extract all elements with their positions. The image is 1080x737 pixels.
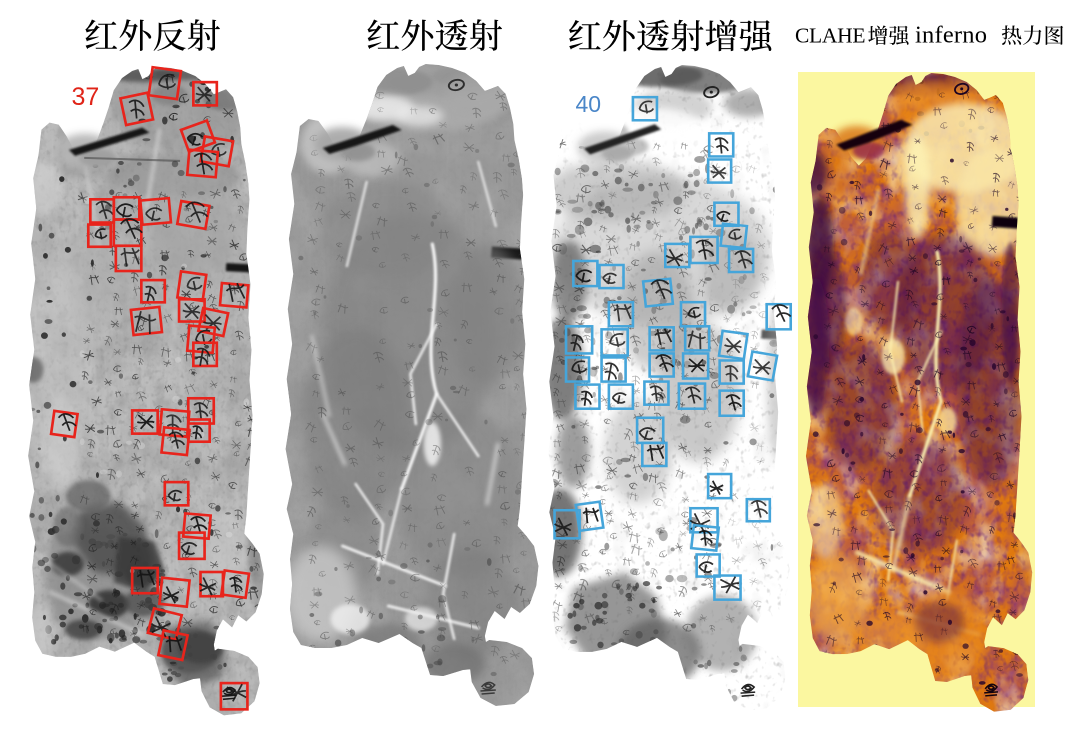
svg-text:37: 37 bbox=[72, 83, 100, 111]
svg-text:inferno: inferno bbox=[915, 22, 987, 49]
svg-text:CLAHE: CLAHE bbox=[795, 24, 865, 48]
svg-text:40: 40 bbox=[576, 91, 602, 117]
